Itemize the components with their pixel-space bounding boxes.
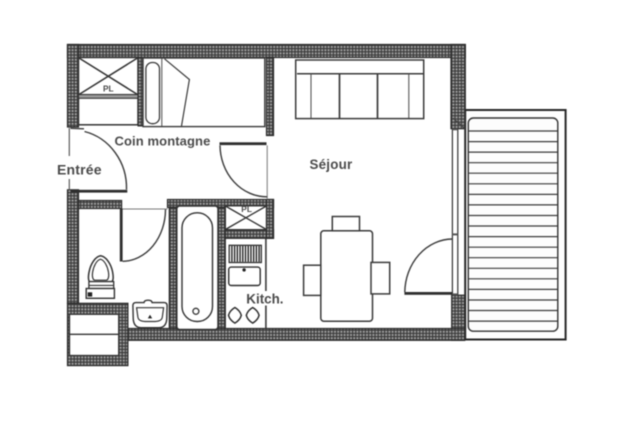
svg-text:Séjour: Séjour: [310, 157, 353, 172]
svg-text:Entrée: Entrée: [57, 161, 102, 177]
svg-text:Kitch.: Kitch.: [246, 291, 283, 306]
svg-text:PL: PL: [241, 204, 252, 214]
svg-text:Coin montagne: Coin montagne: [115, 134, 211, 149]
svg-text:PL: PL: [103, 84, 114, 94]
